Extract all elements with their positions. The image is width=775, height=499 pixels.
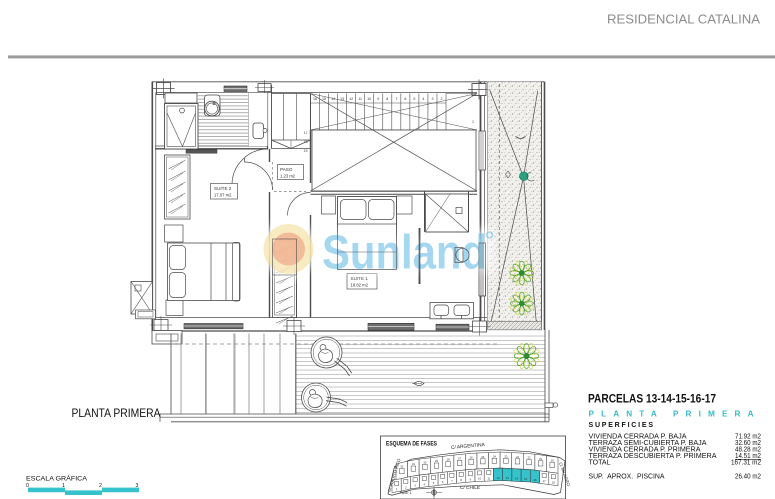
svg-text:TOTAL: TOTAL bbox=[589, 459, 611, 466]
svg-text:19: 19 bbox=[551, 459, 555, 463]
svg-text:24: 24 bbox=[493, 454, 497, 458]
svg-text:30: 30 bbox=[423, 460, 427, 464]
svg-text:13: 13 bbox=[506, 476, 510, 480]
svg-text:Sunland: Sunland bbox=[322, 227, 487, 280]
svg-text:17: 17 bbox=[543, 479, 547, 483]
svg-text:1: 1 bbox=[472, 120, 474, 124]
svg-text:29: 29 bbox=[435, 459, 439, 463]
svg-text:19: 19 bbox=[304, 149, 308, 153]
svg-text:25: 25 bbox=[481, 455, 485, 459]
svg-text:1.23 m2: 1.23 m2 bbox=[280, 174, 296, 179]
svg-text:11: 11 bbox=[358, 97, 362, 101]
svg-text:17.07 m2: 17.07 m2 bbox=[214, 193, 232, 198]
svg-text:4: 4 bbox=[422, 97, 424, 101]
svg-text:12: 12 bbox=[497, 476, 501, 480]
svg-text:FASE 1: FASE 1 bbox=[400, 491, 412, 495]
svg-text:23: 23 bbox=[504, 454, 508, 458]
svg-text:17: 17 bbox=[304, 131, 308, 135]
svg-text:12: 12 bbox=[349, 97, 353, 101]
svg-text:167.31 m2: 167.31 m2 bbox=[731, 459, 761, 466]
svg-text:RESIDENCIAL CATALINA: RESIDENCIAL CATALINA bbox=[607, 12, 760, 27]
svg-text:18: 18 bbox=[552, 481, 556, 485]
svg-text:20: 20 bbox=[539, 457, 543, 461]
svg-text:22: 22 bbox=[516, 455, 520, 459]
svg-text:14: 14 bbox=[515, 477, 519, 481]
svg-text:SUP. APROX. PISCINA: SUP. APROX. PISCINA bbox=[589, 474, 665, 481]
svg-text:7: 7 bbox=[395, 97, 397, 101]
svg-text:27: 27 bbox=[458, 457, 462, 461]
svg-text:2: 2 bbox=[99, 483, 102, 489]
svg-text:ESQUEMA DE FASES: ESQUEMA DE FASES bbox=[386, 441, 437, 448]
svg-text:16: 16 bbox=[533, 478, 537, 482]
svg-text:6: 6 bbox=[404, 97, 406, 101]
svg-text:PLANTA PRIMERA: PLANTA PRIMERA bbox=[72, 406, 162, 420]
svg-text:26: 26 bbox=[470, 456, 474, 460]
svg-text:SUPERFICIES: SUPERFICIES bbox=[589, 422, 654, 429]
svg-text:8: 8 bbox=[386, 97, 388, 101]
svg-text:16: 16 bbox=[313, 97, 317, 101]
svg-text:21: 21 bbox=[528, 456, 532, 460]
svg-text:2: 2 bbox=[440, 97, 442, 101]
svg-text:10: 10 bbox=[367, 97, 371, 101]
svg-text:10: 10 bbox=[478, 477, 482, 481]
svg-text:PASO: PASO bbox=[280, 167, 293, 172]
svg-text:PLANTA PRIMERA: PLANTA PRIMERA bbox=[589, 410, 754, 419]
svg-text:18: 18 bbox=[304, 140, 308, 144]
svg-text:SUITE 2: SUITE 2 bbox=[214, 186, 232, 191]
svg-text:PARCELAS 13-14-15-16-17: PARCELAS 13-14-15-16-17 bbox=[588, 392, 716, 406]
svg-text:5: 5 bbox=[413, 97, 415, 101]
svg-text:32: 32 bbox=[400, 465, 404, 469]
svg-text:31: 31 bbox=[412, 462, 416, 466]
svg-text:15: 15 bbox=[524, 477, 528, 481]
svg-text:11: 11 bbox=[487, 476, 490, 480]
svg-text:28: 28 bbox=[447, 458, 451, 462]
svg-text:18.82 m2: 18.82 m2 bbox=[351, 283, 369, 288]
svg-text:ESCALA GRÁFICA: ESCALA GRÁFICA bbox=[26, 474, 88, 483]
svg-text:9: 9 bbox=[377, 97, 379, 101]
svg-text:C/ CHILE: C/ CHILE bbox=[460, 485, 480, 491]
svg-text:3: 3 bbox=[431, 97, 433, 101]
svg-text:26.40 m2: 26.40 m2 bbox=[735, 474, 761, 481]
